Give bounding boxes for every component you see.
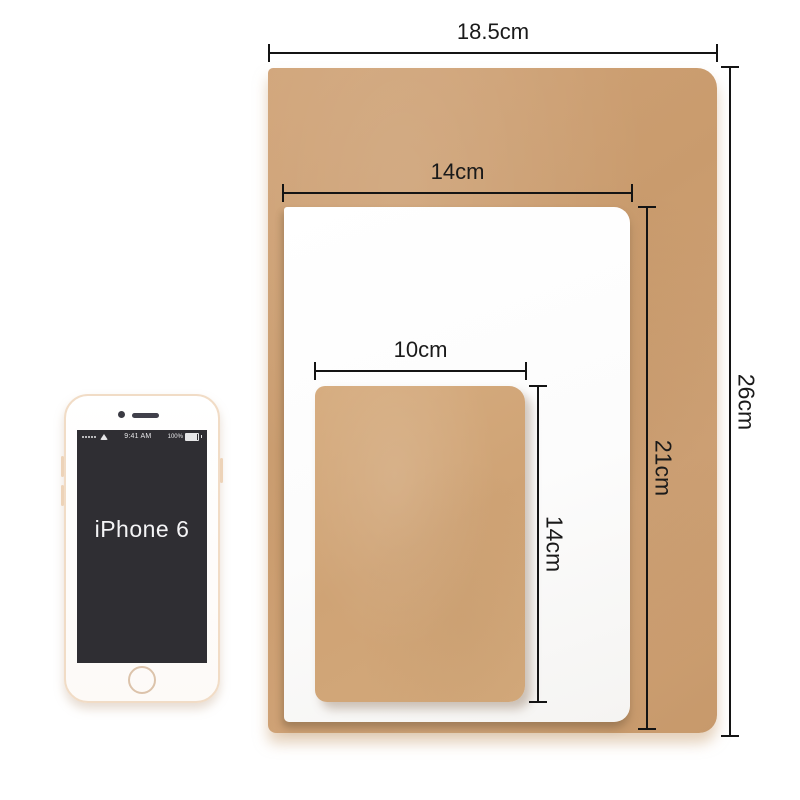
dimension-large-height-label: 26cm: [733, 373, 760, 429]
volume-up-button: [61, 456, 64, 477]
dimension-tick: [638, 728, 656, 730]
dimension-medium-width-label: 14cm: [431, 159, 485, 185]
dimension-tick: [268, 44, 270, 62]
battery-icon-nub: [201, 435, 202, 438]
battery-status: 100%: [168, 433, 202, 441]
battery-icon: [185, 433, 199, 441]
dimension-large-width: 18.5cm: [268, 52, 718, 54]
dimension-tick: [282, 184, 284, 202]
home-button: [128, 666, 156, 694]
dimension-tick: [721, 735, 739, 737]
power-button: [220, 458, 223, 483]
phone-model-label: iPhone 6: [77, 516, 207, 543]
iphone-6-reference: 9:41 AM 100% iPhone 6: [64, 394, 220, 703]
dimension-tick: [721, 66, 739, 68]
dimension-medium-height-label: 21cm: [650, 440, 677, 496]
dimension-medium-width: 14cm: [282, 192, 633, 194]
dimension-tick: [631, 184, 633, 202]
status-bar: 9:41 AM 100%: [77, 430, 207, 443]
front-camera-icon: [118, 411, 125, 418]
dimension-tick: [314, 362, 316, 380]
status-time: 9:41 AM: [124, 433, 151, 440]
dimension-tick: [716, 44, 718, 62]
dimension-small-height-label: 14cm: [541, 516, 568, 572]
dimension-small-width: 10cm: [314, 370, 527, 372]
dimension-small-width-label: 10cm: [394, 337, 448, 363]
dimension-tick: [525, 362, 527, 380]
phone-screen: 9:41 AM 100% iPhone 6: [77, 430, 207, 663]
small-kraft-notebook: [315, 386, 525, 702]
earpiece-speaker-icon: [132, 413, 159, 418]
dimension-medium-height: 21cm: [646, 206, 648, 730]
dimension-large-height: 26cm: [729, 66, 731, 737]
dimension-tick: [529, 701, 547, 703]
dimension-tick: [529, 385, 547, 387]
volume-down-button: [61, 485, 64, 506]
dimension-large-width-label: 18.5cm: [457, 19, 529, 45]
dimension-small-height: 14cm: [537, 385, 539, 703]
dimension-tick: [638, 206, 656, 208]
product-size-diagram: 18.5cm 14cm 10cm 26cm 21cm 14cm: [0, 0, 800, 800]
battery-percent-label: 100%: [168, 434, 183, 440]
wifi-icon: [100, 434, 108, 440]
signal-strength-icon: [82, 434, 108, 440]
